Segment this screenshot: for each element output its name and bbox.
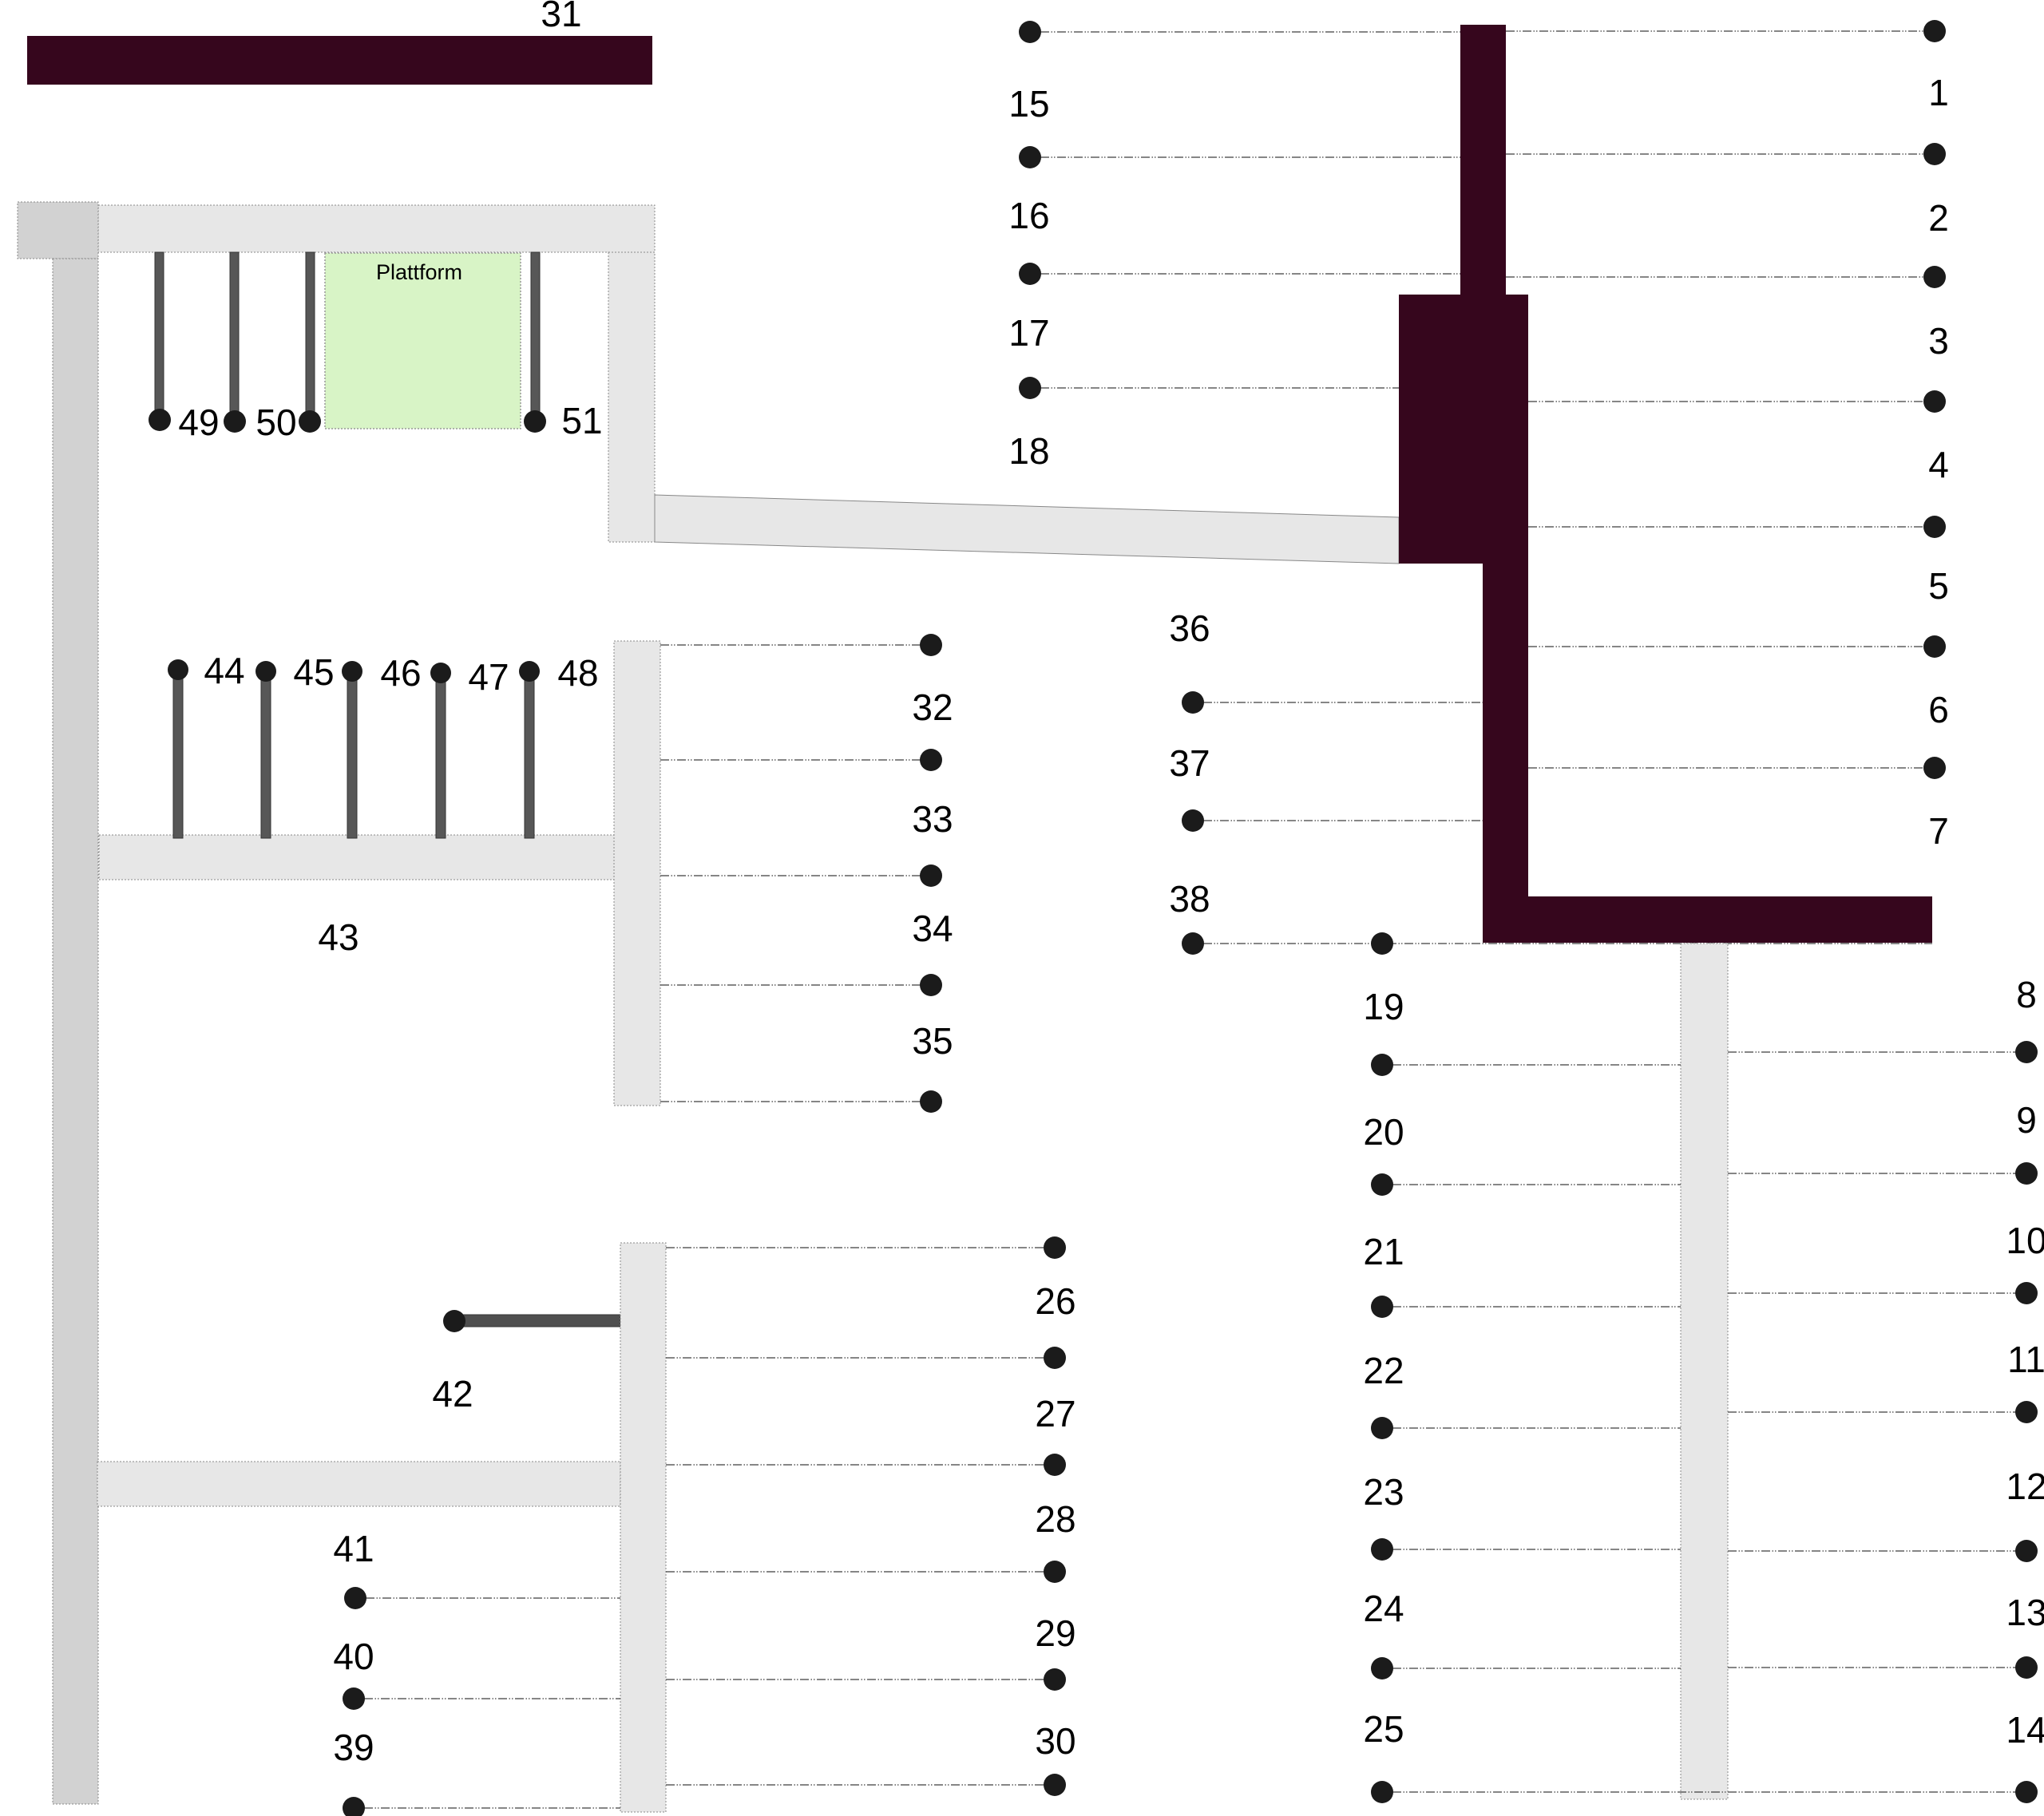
svg-text:31: 31 [541,0,581,34]
svg-text:35: 35 [912,1020,953,1062]
svg-text:10: 10 [2006,1220,2044,1261]
svg-text:12: 12 [2006,1466,2044,1507]
svg-text:39: 39 [333,1727,374,1768]
svg-text:20: 20 [1363,1111,1404,1153]
svg-text:36: 36 [1169,607,1210,649]
svg-text:1: 1 [1928,72,1949,113]
svg-text:34: 34 [912,908,953,949]
svg-text:19: 19 [1363,986,1404,1027]
svg-text:27: 27 [1035,1393,1075,1434]
svg-text:15: 15 [1008,83,1049,125]
svg-text:47: 47 [468,656,509,698]
svg-text:22: 22 [1363,1350,1404,1391]
svg-text:14: 14 [2006,1709,2044,1751]
svg-text:40: 40 [333,1636,374,1677]
svg-text:7: 7 [1928,810,1949,852]
svg-text:6: 6 [1928,689,1949,730]
svg-text:9: 9 [2016,1099,2037,1141]
svg-text:33: 33 [912,798,953,840]
svg-text:44: 44 [204,650,244,691]
svg-text:50: 50 [255,402,296,443]
svg-text:43: 43 [318,916,358,958]
svg-text:4: 4 [1928,444,1949,485]
svg-text:26: 26 [1035,1280,1075,1322]
svg-text:46: 46 [380,652,421,694]
svg-text:51: 51 [561,400,602,441]
svg-text:49: 49 [178,402,219,443]
svg-text:13: 13 [2006,1592,2044,1633]
svg-text:28: 28 [1035,1498,1075,1540]
svg-text:38: 38 [1169,878,1210,920]
svg-text:29: 29 [1035,1612,1075,1654]
svg-text:Plattform: Plattform [376,260,462,284]
svg-text:2: 2 [1928,197,1949,239]
svg-text:18: 18 [1008,430,1049,472]
svg-text:11: 11 [2007,1339,2044,1380]
svg-text:23: 23 [1363,1471,1404,1513]
svg-text:21: 21 [1363,1231,1404,1272]
svg-text:32: 32 [912,686,953,728]
svg-text:41: 41 [333,1528,374,1569]
svg-text:48: 48 [557,652,598,694]
svg-text:17: 17 [1008,312,1049,354]
svg-text:30: 30 [1035,1720,1075,1762]
svg-text:25: 25 [1363,1708,1404,1750]
svg-text:3: 3 [1928,320,1949,362]
svg-text:37: 37 [1169,742,1210,784]
svg-text:45: 45 [293,651,334,693]
svg-text:5: 5 [1928,565,1949,607]
svg-text:16: 16 [1008,195,1049,236]
svg-text:42: 42 [432,1373,473,1414]
svg-text:24: 24 [1363,1588,1404,1629]
svg-text:8: 8 [2016,974,2037,1015]
